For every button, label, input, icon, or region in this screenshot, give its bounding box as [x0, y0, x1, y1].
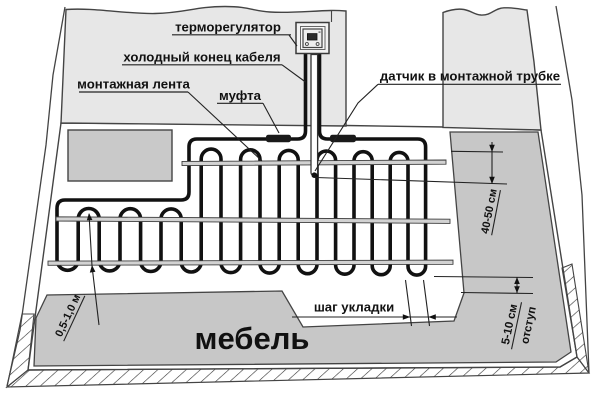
svg-text:холодный конец кабеля: холодный конец кабеля — [123, 50, 280, 65]
svg-text:шаг укладки: шаг укладки — [314, 300, 394, 315]
svg-text:монтажная лента: монтажная лента — [77, 77, 190, 92]
svg-text:датчик в монтажной трубке: датчик в монтажной трубке — [380, 69, 560, 84]
svg-text:мебель: мебель — [195, 321, 310, 356]
svg-text:терморегулятор: терморегулятор — [175, 20, 281, 35]
svg-text:муфта: муфта — [219, 88, 262, 103]
